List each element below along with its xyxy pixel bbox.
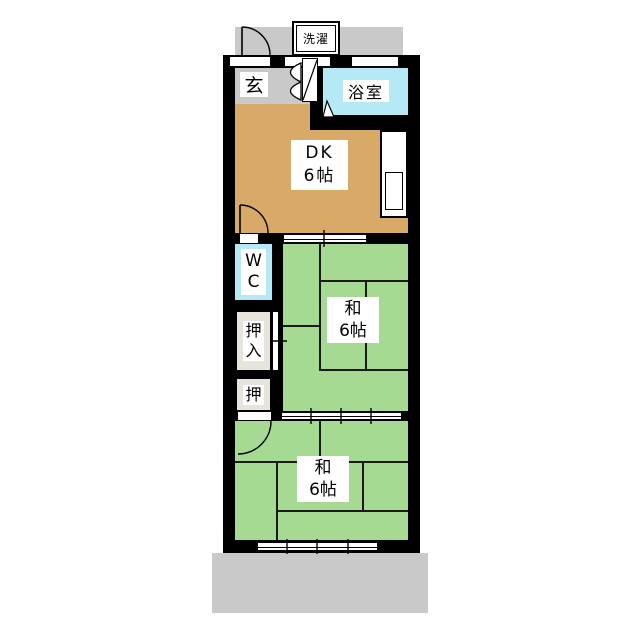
tatami-line (276, 461, 278, 540)
sliding-door-washitsu (281, 412, 402, 420)
dk-label: DK 6帖 (291, 140, 348, 190)
oshiire-fusuma (272, 312, 279, 370)
washing-machine-box: 洗濯 (292, 21, 340, 56)
oshiire-closet: 押 入 (235, 310, 272, 372)
floor-plan: 洗濯 W C 押 入 押 和 6帖 (0, 0, 640, 640)
washitsu-door-opening (238, 412, 271, 420)
sliding-door-dk-washitsu (283, 234, 367, 243)
wc-door-opening (240, 234, 258, 243)
bathroom-window (352, 57, 398, 66)
wc-label: W C (241, 249, 266, 295)
tatami-line (362, 461, 364, 512)
tatami-line (319, 244, 321, 370)
genkan-door-panel (302, 58, 318, 102)
tatami-line (276, 510, 408, 512)
oshiire-label: 押 入 (243, 321, 263, 361)
tatami-line (283, 325, 321, 327)
oshi-closet: 押 (235, 377, 272, 412)
oshi-label: 押 (243, 385, 263, 405)
washitsu-lower-label: 和 6帖 (297, 456, 349, 502)
tatami-line (319, 280, 408, 282)
washitsu-upper-label: 和 6帖 (327, 297, 379, 343)
washing-machine-label: 洗濯 (296, 25, 336, 52)
entrance-label: 玄 (240, 72, 268, 97)
balcony (212, 553, 428, 613)
bathroom-wall-bottom (310, 115, 408, 130)
wall-right (408, 55, 420, 553)
wall-left (223, 55, 235, 553)
tatami-line (319, 369, 408, 371)
balcony-window (257, 542, 378, 551)
entry-door-opening (230, 57, 270, 66)
wall-wc-bottom (235, 300, 272, 310)
kitchen-sink (385, 172, 403, 210)
bathroom-label: 浴室 (343, 80, 389, 102)
